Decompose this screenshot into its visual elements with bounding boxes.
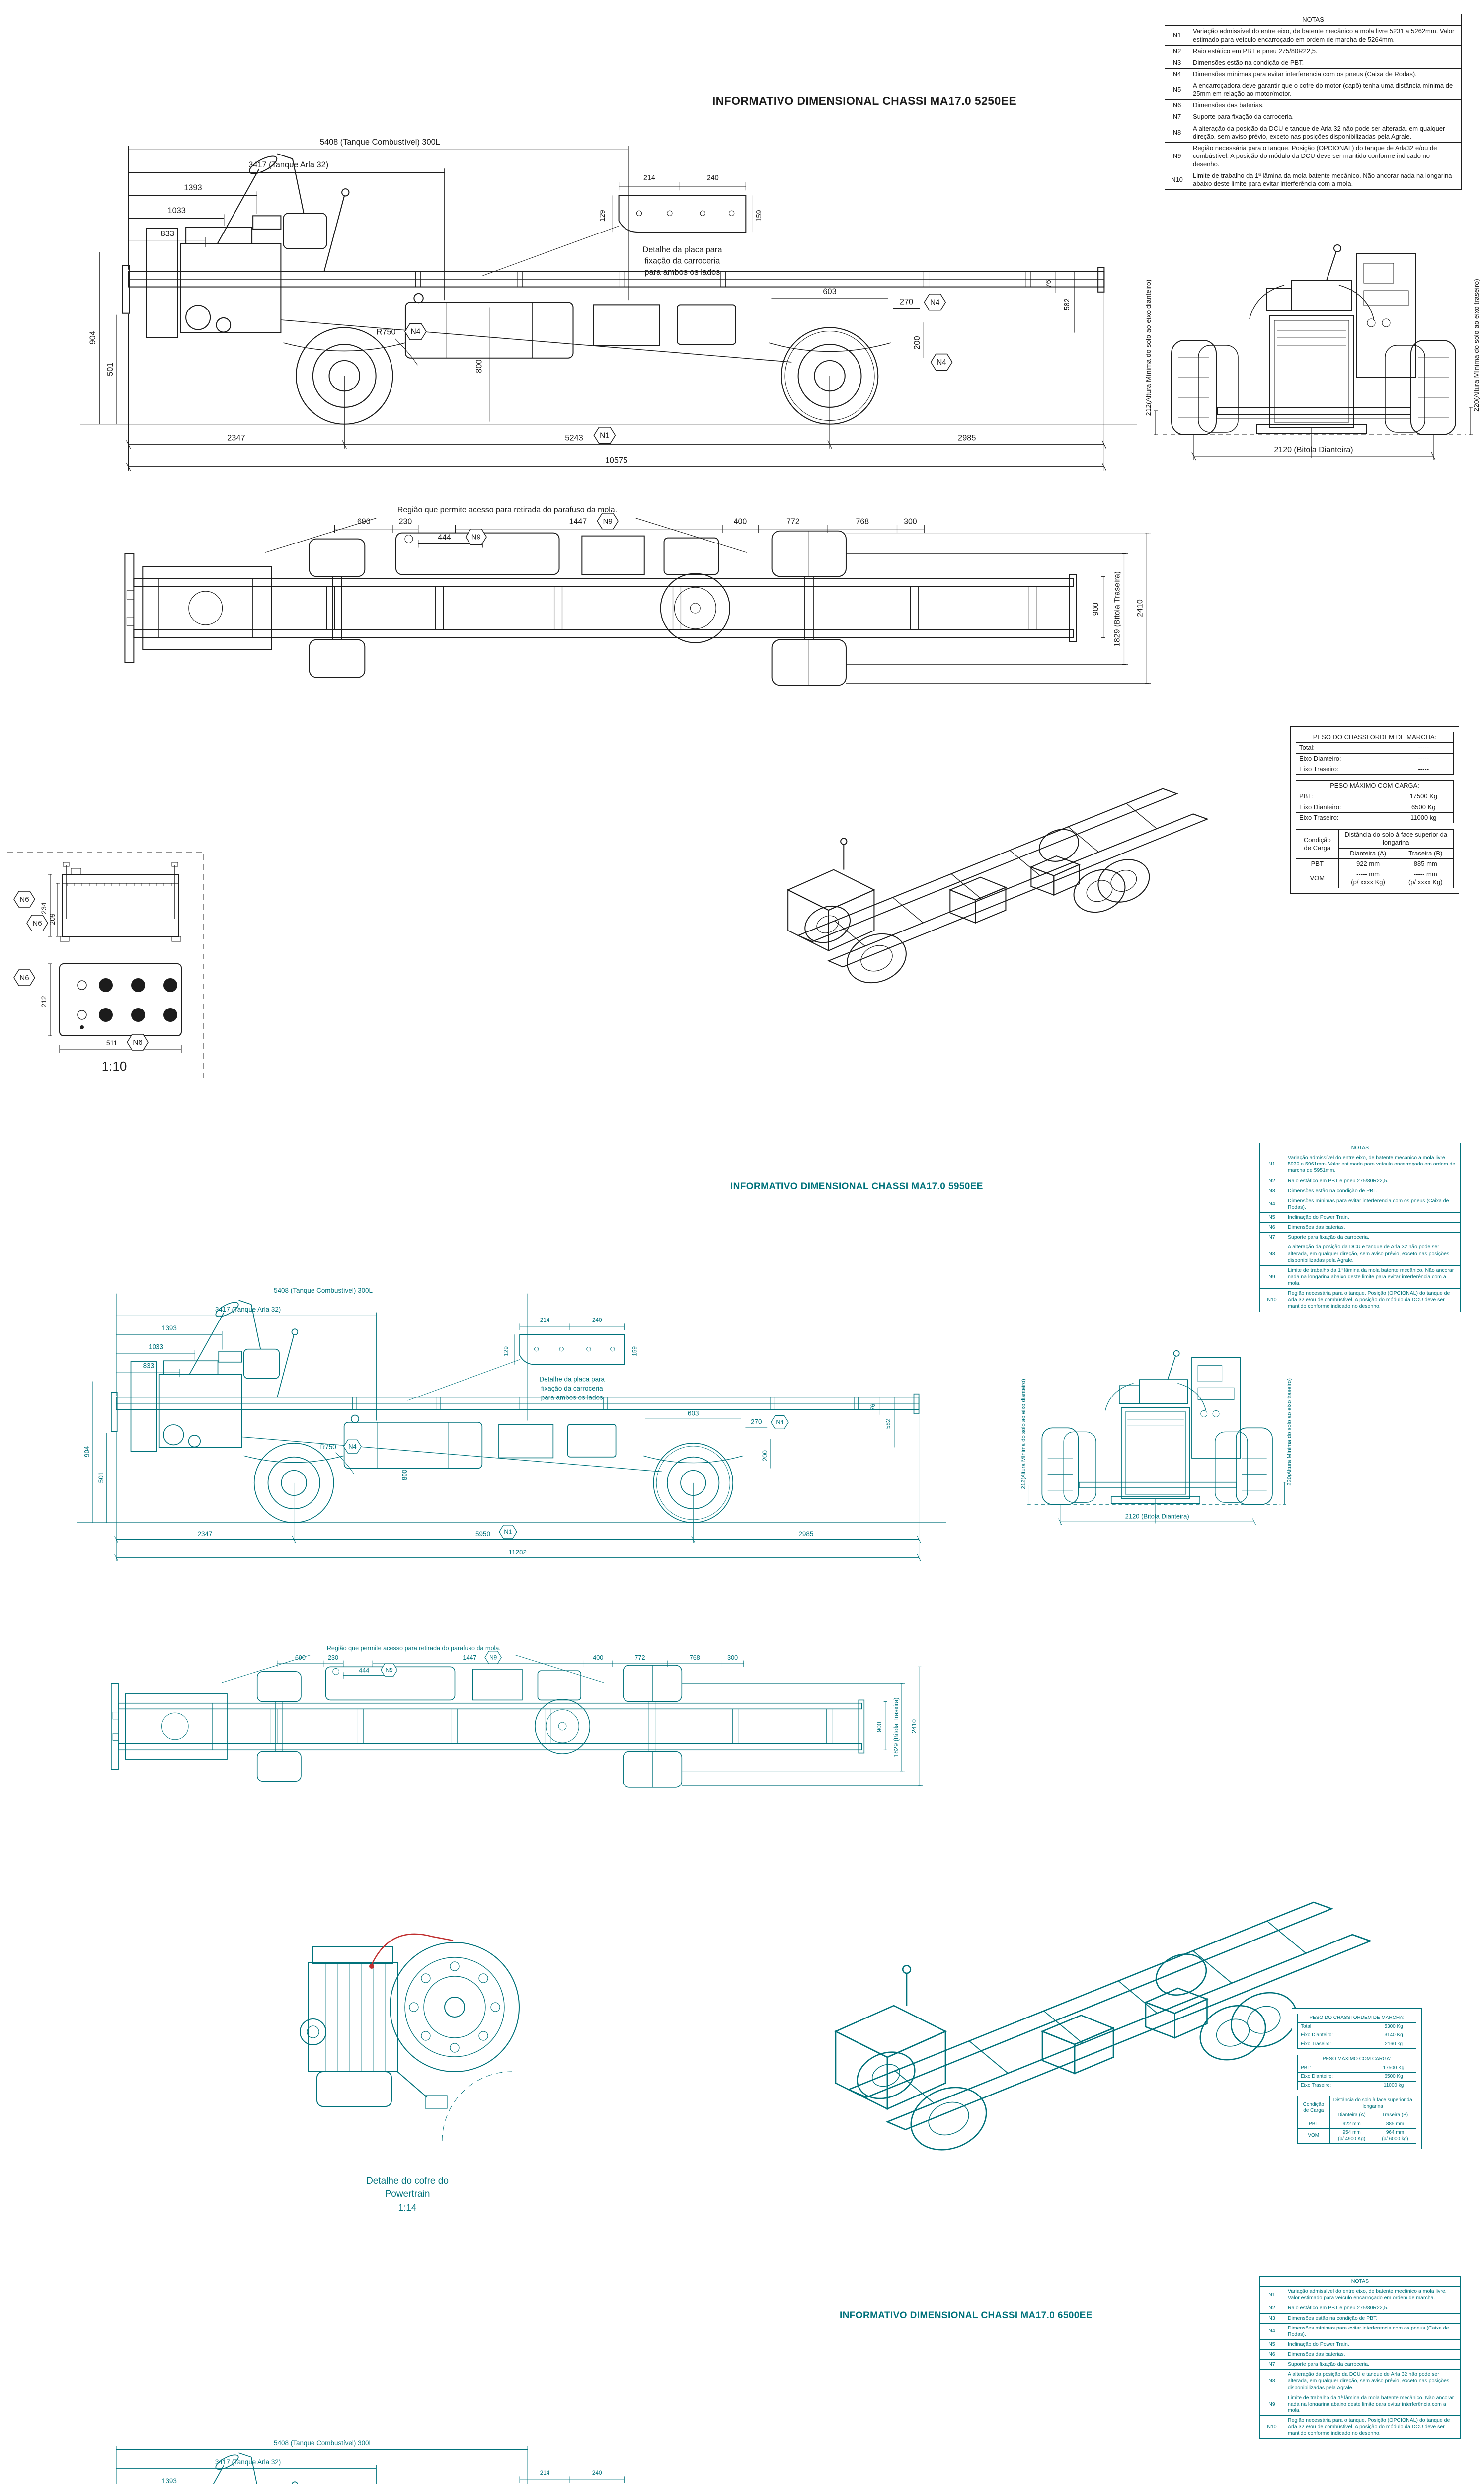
row-value: ----- mm (p/ xxxx Kg) <box>1338 869 1398 888</box>
table-row: Eixo Traseiro: ----- <box>1296 764 1454 774</box>
dim-label: 800 <box>474 359 483 373</box>
note-id: N8 <box>1165 123 1189 143</box>
svg-text:N6: N6 <box>133 1038 142 1047</box>
note-text: Dimensões das baterias. <box>1189 100 1462 111</box>
note-row: N10 Região necessária para o tanque. Pos… <box>1260 1289 1461 1312</box>
dim-label: 833 <box>143 1362 154 1370</box>
table-header: PESO MÁXIMO COM CARGA: <box>1296 781 1454 791</box>
note-tag: N9 <box>597 513 618 529</box>
dim-wheelbase: 5243 <box>565 433 583 442</box>
dim-label: 159 <box>755 210 763 222</box>
dim-label: 768 <box>856 518 869 526</box>
dim-label: 1393 <box>184 183 202 192</box>
svg-text:N4: N4 <box>937 358 946 367</box>
dim-label: 900 <box>876 1722 883 1732</box>
dim-label: 240 <box>592 2470 602 2476</box>
table-row: PBT: 17500 Kg <box>1296 791 1454 802</box>
weight-table-condition: Condição de Carga Distância do solo à fa… <box>1296 829 1454 888</box>
dim-front-overhang: 2347 <box>227 433 245 442</box>
dim-total-length: 10575 <box>605 456 628 465</box>
dim-rear-track: 1829 (Bitola Traseira) <box>1113 571 1122 647</box>
dim-label: 1393 <box>162 2477 177 2484</box>
svg-text:N4: N4 <box>348 1443 356 1450</box>
note-text: Região necessária para o tanque. Posição… <box>1284 2416 1461 2439</box>
row-value: 3140 Kg <box>1371 2031 1416 2040</box>
note-row: N5 Inclinação do Power Train. <box>1260 1213 1461 1223</box>
row-value: ----- <box>1394 764 1453 774</box>
dim-rear-overhang: 2985 <box>958 433 976 442</box>
note-row: N7 Suporte para fixação da carroceria. <box>1260 1233 1461 1242</box>
powertrain-detail: Detalhe do cofre do Powertrain 1:14 <box>278 1908 537 2221</box>
dim-label: 690 <box>295 1654 306 1661</box>
weight-tables: PESO DO CHASSI ORDEM DE MARCHA: Total: 5… <box>1292 2008 1422 2149</box>
note-tag: N6 <box>27 915 48 931</box>
note-row: N8 A alteração da posição da DCU e tanqu… <box>1165 123 1462 143</box>
note-tag: N4 <box>931 354 952 371</box>
note-row: N6 Dimensões das baterias. <box>1260 2350 1461 2360</box>
note-id: N10 <box>1165 170 1189 190</box>
note-id: N9 <box>1165 143 1189 170</box>
note-tag: N4 <box>405 323 426 340</box>
note-text: Região necessária para o tanque. Posição… <box>1284 1289 1461 1312</box>
note-id: N7 <box>1165 111 1189 123</box>
weight-tables: PESO DO CHASSI ORDEM DE MARCHA: Total: -… <box>1290 726 1459 894</box>
dim-total-length: 11282 <box>509 1549 527 1556</box>
row-label: Eixo Traseiro: <box>1298 2040 1371 2049</box>
row-value: 964 mm (p/ 6000 kg) <box>1374 2129 1416 2144</box>
row-label: PBT: <box>1296 791 1394 802</box>
cond-span-header: Distância do solo à face superior da lon… <box>1338 830 1453 849</box>
page-title: INFORMATIVO DIMENSIONAL CHASSI MA17.0 52… <box>710 94 1018 108</box>
table-row: Eixo Dianteiro: 6500 Kg <box>1298 2073 1416 2082</box>
dim-label: 904 <box>88 331 97 344</box>
row-value: 17500 Kg <box>1394 791 1453 802</box>
note-text: Raio estático em PBT e pneu 275/80R22,5. <box>1189 45 1462 57</box>
note-id: N6 <box>1165 100 1189 111</box>
cond-col-b: Traseira (B) <box>1374 2111 1416 2120</box>
dim-label: 129 <box>599 210 607 222</box>
side-view: 5408 (Tanque Combustível) 300L 3417 (Tan… <box>60 119 1153 475</box>
dim-label: 300 <box>727 1654 738 1661</box>
dim-label: 212 <box>40 996 48 1008</box>
svg-text:N9: N9 <box>386 1667 393 1674</box>
battery-detail: N6 234 N6 209 N6 212 511 N6 1:10 <box>7 845 216 1078</box>
row-label: Eixo Dianteiro: <box>1298 2073 1371 2082</box>
note-row: N2 Raio estático em PBT e pneu 275/80R22… <box>1165 45 1462 57</box>
note-id: N5 <box>1260 2339 1284 2349</box>
plate-caption: Detalhe da placa para <box>642 245 722 254</box>
dim-label: 501 <box>106 363 115 376</box>
row-value: 922 mm <box>1338 858 1398 869</box>
note-text: Suporte para fixação da carroceria. <box>1284 2360 1461 2370</box>
svg-text:N4: N4 <box>411 328 421 336</box>
dim-label: 200 <box>761 1450 769 1461</box>
row-label: PBT <box>1298 2120 1330 2129</box>
dim-label: 1393 <box>162 1324 177 1332</box>
note-id: N2 <box>1260 2303 1284 2313</box>
notes-table: NOTAS N1 Variação admissível do entre ei… <box>1165 14 1462 190</box>
dim-label: 270 <box>900 297 913 306</box>
note-id: N2 <box>1165 45 1189 57</box>
dim-label: 772 <box>635 1654 645 1661</box>
detail-caption: Powertrain <box>385 2189 430 2199</box>
weight-table-chassis: PESO DO CHASSI ORDEM DE MARCHA: Total: 5… <box>1297 2014 1416 2049</box>
front-view: 212(Altura Mínima do solo ao eixo diante… <box>1143 233 1484 467</box>
detail-caption: Detalhe do cofre do <box>366 2176 449 2186</box>
note-text: Região necessária para o tanque. Posição… <box>1189 143 1462 170</box>
page-title: INFORMATIVO DIMENSIONAL CHASSI MA17.0 59… <box>730 1181 969 1195</box>
note-row: N4 Dimensões mínimas para evitar interfe… <box>1260 2323 1461 2339</box>
note-tag: N9 <box>381 1664 397 1676</box>
note-id: N9 <box>1260 1265 1284 1288</box>
cond-col-a: Dianteira (A) <box>1338 848 1398 858</box>
row-value: 6500 Kg <box>1371 2073 1416 2082</box>
row-label: Eixo Dianteiro: <box>1296 802 1394 812</box>
row-label: Eixo Traseiro: <box>1296 812 1394 823</box>
notes-header: NOTAS <box>1260 2277 1461 2287</box>
note-row: N9 Região necessária para o tanque. Posi… <box>1165 143 1462 170</box>
note-id: N3 <box>1260 2313 1284 2323</box>
row-value: 2160 kg <box>1371 2040 1416 2049</box>
note-row: N3 Dimensões estão na condição de PBT. <box>1260 2313 1461 2323</box>
note-id: N6 <box>1260 1223 1284 1233</box>
note-text: A encarroçadora deve garantir que o cofr… <box>1189 80 1462 100</box>
dim-label: 1033 <box>167 206 185 215</box>
note-text: Suporte para fixação da carroceria. <box>1284 1233 1461 1242</box>
note-text: Dimensões mínimas para evitar interferen… <box>1284 2323 1461 2339</box>
table-row: PBT 922 mm 885 mm <box>1298 2120 1416 2129</box>
dim-label: 1447 <box>569 518 587 526</box>
dim-label: 582 <box>885 1419 892 1429</box>
note-row: N4 Dimensões mínimas para evitar interfe… <box>1165 69 1462 80</box>
note-text: Variação admissível do entre eixo, de ba… <box>1284 1153 1461 1176</box>
note-text: Variação admissível do entre eixo, de ba… <box>1284 2287 1461 2303</box>
note-id: N1 <box>1260 2287 1284 2303</box>
dim-label: 240 <box>592 1317 602 1323</box>
svg-text:N6: N6 <box>19 895 29 904</box>
table-header: PESO DO CHASSI ORDEM DE MARCHA: <box>1298 2014 1416 2023</box>
dim-label: 582 <box>1063 298 1071 310</box>
top-caption: Região que permite acesso para retirada … <box>327 1645 501 1652</box>
note-row: N9 Limite de trabalho da 1ª lâmina da mo… <box>1260 1265 1461 1288</box>
table-row: Eixo Traseiro: 11000 kg <box>1296 812 1454 823</box>
note-row: N1 Variação admissível do entre eixo, de… <box>1260 1153 1461 1176</box>
dim-label: 900 <box>1092 603 1100 616</box>
page-title: INFORMATIVO DIMENSIONAL CHASSI MA17.0 65… <box>840 2310 1068 2324</box>
dim-tank-fuel: 5408 (Tanque Combustível) 300L <box>274 2439 373 2447</box>
table-header: PESO DO CHASSI ORDEM DE MARCHA: <box>1296 732 1454 743</box>
weight-table-chassis: PESO DO CHASSI ORDEM DE MARCHA: Total: -… <box>1296 732 1454 775</box>
dim-label: 129 <box>503 1346 509 1356</box>
row-label: PBT: <box>1298 2064 1371 2073</box>
dim-rear-overhang: 2985 <box>798 1530 813 1538</box>
dim-front-overhang: 2347 <box>197 1530 212 1538</box>
note-text: Limite de trabalho da 1ª lâmina da mola … <box>1284 1265 1461 1288</box>
plate-caption: para ambos os lados <box>541 1394 603 1401</box>
note-tag: N4 <box>344 1440 361 1453</box>
note-tag: N1 <box>594 427 615 444</box>
table-row: Eixo Traseiro: 11000 kg <box>1298 2081 1416 2090</box>
note-id: N8 <box>1260 2370 1284 2393</box>
row-value: ----- mm (p/ xxxx Kg) <box>1398 869 1453 888</box>
dim-label: 76 <box>870 1404 876 1411</box>
row-value: 5300 Kg <box>1371 2022 1416 2031</box>
plate-caption: para ambos os lados <box>644 268 720 277</box>
note-text: Dimensões mínimas para evitar interferen… <box>1189 69 1462 80</box>
dim-label: 690 <box>357 518 371 526</box>
row-value: 6500 Kg <box>1394 802 1453 812</box>
note-row: N8 A alteração da posição da DCU e tanqu… <box>1260 2370 1461 2393</box>
row-label: VOM <box>1298 2129 1330 2144</box>
note-id: N10 <box>1260 1289 1284 1312</box>
notes-table: NOTAS N1 Variação admissível do entre ei… <box>1259 1143 1461 1312</box>
note-text: A alteração da posição da DCU e tanque d… <box>1189 123 1462 143</box>
note-tag: N9 <box>466 529 486 545</box>
dim-tank-arla: 3417 (Tanque Arla 32) <box>215 1306 281 1313</box>
dim-label: 400 <box>734 518 747 526</box>
note-id: N4 <box>1260 2323 1284 2339</box>
plate-caption: Detalhe da placa para <box>539 1375 605 1383</box>
note-row: N2 Raio estático em PBT e pneu 275/80R22… <box>1260 2303 1461 2313</box>
dim-label: 230 <box>328 1654 338 1661</box>
dim-label: 76 <box>1045 280 1053 288</box>
row-value: ----- <box>1394 753 1453 764</box>
dim-rear-track: 1829 (Bitola Traseira) <box>893 1697 900 1757</box>
note-text: Limite de trabalho da 1ª lâmina da mola … <box>1284 2393 1461 2415</box>
svg-text:N9: N9 <box>471 533 481 542</box>
weight-table-max: PESO MÁXIMO COM CARGA: PBT: 17500 Kg Eix… <box>1297 2055 1416 2090</box>
note-id: N5 <box>1260 1213 1284 1223</box>
top-view: Região que permite acesso para retirada … <box>60 479 1177 737</box>
row-label: Eixo Traseiro: <box>1296 764 1394 774</box>
note-id: N9 <box>1260 2393 1284 2415</box>
note-id: N3 <box>1260 1186 1284 1196</box>
row-label: Eixo Dianteiro: <box>1298 2031 1371 2040</box>
row-label: Total: <box>1298 2022 1371 2031</box>
table-row: Eixo Dianteiro: 6500 Kg <box>1296 802 1454 812</box>
svg-text:N9: N9 <box>489 1654 497 1661</box>
dim-label: 772 <box>786 518 800 526</box>
note-text: Dimensões mínimas para evitar interferen… <box>1284 1196 1461 1212</box>
note-text: Dimensões das baterias. <box>1284 1223 1461 1233</box>
front-view: 212(Altura Mínima do solo ao eixo diante… <box>1018 1341 1297 1531</box>
note-text: Dimensões estão na condição de PBT. <box>1284 1186 1461 1196</box>
note-row: N7 Suporte para fixação da carroceria. <box>1260 2360 1461 2370</box>
side-view: 5408 (Tanque Combustível) 300L 3417 (Tan… <box>60 1272 959 1564</box>
svg-text:N1: N1 <box>504 1529 512 1536</box>
dim-label: 234 <box>40 902 48 914</box>
note-id: N2 <box>1260 1176 1284 1186</box>
table-header: PESO MÁXIMO COM CARGA: <box>1298 2055 1416 2064</box>
note-tag: N4 <box>771 1415 788 1429</box>
dim-label: 444 <box>359 1667 369 1674</box>
dim-overall-width: 2410 <box>911 1719 918 1733</box>
note-row: N5 A encarroçadora deve garantir que o c… <box>1165 80 1462 100</box>
dim-tank-arla: 3417 (Tanque Arla 32) <box>248 160 328 169</box>
note-row: N5 Inclinação do Power Train. <box>1260 2339 1461 2349</box>
dim-tank-fuel: 5408 (Tanque Combustível) 300L <box>320 138 440 147</box>
cond-col-a: Dianteira (A) <box>1329 2111 1374 2120</box>
table-row: Total: ----- <box>1296 743 1454 753</box>
note-id: N10 <box>1260 2416 1284 2439</box>
note-id: N4 <box>1260 1196 1284 1212</box>
dim-label: 1447 <box>463 1654 476 1661</box>
dim-label: 444 <box>438 534 451 542</box>
note-id: N1 <box>1165 26 1189 46</box>
top-view: Região que permite acesso para retirada … <box>60 1625 944 1828</box>
dim-overall-width: 2410 <box>1136 599 1144 617</box>
dim-label: 214 <box>643 174 655 182</box>
note-row: N8 A alteração da posição da DCU e tanqu… <box>1260 1242 1461 1265</box>
dim-rear-axle-height: 220(Altura Mínima do solo ao eixo trasei… <box>1286 1378 1292 1486</box>
note-id: N1 <box>1260 1153 1284 1176</box>
weight-table-condition: Condição de Carga Distância do solo à fa… <box>1297 2096 1416 2144</box>
note-tag: N6 <box>14 970 35 986</box>
note-row: N3 Dimensões estão na condição de PBT. <box>1260 1186 1461 1196</box>
table-row: PBT 922 mm 885 mm <box>1296 858 1454 869</box>
note-row: N4 Dimensões mínimas para evitar interfe… <box>1260 1196 1461 1212</box>
note-text: Limite de trabalho da 1ª lâmina da mola … <box>1189 170 1462 190</box>
dim-label: R750 <box>320 1443 336 1451</box>
dim-front-track: 2120 (Bitola Dianteira) <box>1274 446 1353 454</box>
note-row: N9 Limite de trabalho da 1ª lâmina da mo… <box>1260 2393 1461 2415</box>
note-text: Raio estático em PBT e pneu 275/80R22,5. <box>1284 1176 1461 1186</box>
dim-label: 833 <box>161 229 174 238</box>
notes-header: NOTAS <box>1260 1143 1461 1153</box>
row-value: 885 mm <box>1398 858 1453 869</box>
dim-label: 209 <box>48 913 56 925</box>
row-value: 922 mm <box>1329 2120 1374 2129</box>
cond-col-b: Traseira (B) <box>1398 848 1453 858</box>
note-text: Variação admissível do entre eixo, de ba… <box>1189 26 1462 46</box>
dim-label: 511 <box>106 1039 118 1047</box>
dim-label: 501 <box>97 1472 105 1483</box>
dim-front-axle-height: 212(Altura Mínima do solo ao eixo diante… <box>1020 1379 1026 1489</box>
table-row: Total: 5300 Kg <box>1298 2022 1416 2031</box>
dim-label: 400 <box>593 1654 603 1661</box>
note-text: A alteração da posição da DCU e tanque d… <box>1284 2370 1461 2393</box>
note-text: Inclinação do Power Train. <box>1284 1213 1461 1223</box>
dim-front-track: 2120 (Bitola Dianteira) <box>1125 1513 1189 1520</box>
dim-label: 904 <box>83 1446 90 1457</box>
row-label: Eixo Dianteiro: <box>1296 753 1394 764</box>
dim-label: 603 <box>688 1409 699 1417</box>
dim-front-axle-height: 212(Altura Mínima do solo ao eixo diante… <box>1144 280 1152 416</box>
svg-text:N4: N4 <box>776 1419 783 1426</box>
note-row: N6 Dimensões das baterias. <box>1165 100 1462 111</box>
table-row: Eixo Traseiro: 2160 kg <box>1298 2040 1416 2049</box>
dim-rear-axle-height: 220(Altura Mínima do solo ao eixo trasei… <box>1472 279 1480 412</box>
dim-label: 1033 <box>149 1343 163 1351</box>
note-id: N5 <box>1165 80 1189 100</box>
dim-label: 603 <box>823 287 836 296</box>
dim-label: 300 <box>904 518 917 526</box>
note-tag: N1 <box>499 1525 517 1539</box>
note-text: A alteração da posição da DCU e tanque d… <box>1284 1242 1461 1265</box>
svg-text:N1: N1 <box>600 431 610 440</box>
dim-tank-arla: 3417 (Tanque Arla 32) <box>215 2458 281 2466</box>
svg-text:N6: N6 <box>19 974 29 982</box>
note-row: N1 Variação admissível do entre eixo, de… <box>1260 2287 1461 2303</box>
detail-scale: 1:14 <box>398 2203 417 2213</box>
note-id: N3 <box>1165 57 1189 69</box>
dim-label: 214 <box>540 1317 550 1323</box>
dim-label: 240 <box>707 174 719 182</box>
note-row: N6 Dimensões das baterias. <box>1260 1223 1461 1233</box>
row-value: 11000 kg <box>1371 2081 1416 2090</box>
row-label: Total: <box>1296 743 1394 753</box>
dim-label: R750 <box>377 328 396 337</box>
row-label: Eixo Traseiro: <box>1298 2081 1371 2090</box>
cond-col-header: Condição de Carga <box>1296 830 1339 859</box>
row-label: PBT <box>1296 858 1339 869</box>
row-value: 17500 Kg <box>1371 2064 1416 2073</box>
note-text: Raio estático em PBT e pneu 275/80R22,5. <box>1284 2303 1461 2313</box>
note-tag: N6 <box>14 891 35 907</box>
note-tag: N4 <box>924 294 945 310</box>
note-row: N10 Região necessária para o tanque. Pos… <box>1260 2416 1461 2439</box>
note-id: N4 <box>1165 69 1189 80</box>
note-tag: N9 <box>485 1651 501 1664</box>
dim-label: 768 <box>690 1654 700 1661</box>
row-value: 885 mm <box>1374 2120 1416 2129</box>
cond-span-header: Distância do solo à face superior da lon… <box>1329 2096 1416 2111</box>
dim-label: 200 <box>913 336 922 349</box>
note-row: N2 Raio estático em PBT e pneu 275/80R22… <box>1260 1176 1461 1186</box>
svg-text:N4: N4 <box>930 298 940 307</box>
dim-label: 214 <box>540 2470 550 2476</box>
dim-label: 800 <box>401 1470 408 1480</box>
note-text: Suporte para fixação da carroceria. <box>1189 111 1462 123</box>
note-text: Dimensões estão na condição de PBT. <box>1189 57 1462 69</box>
table-row: VOM ----- mm (p/ xxxx Kg) ----- mm (p/ x… <box>1296 869 1454 888</box>
note-tag: N6 <box>127 1034 148 1050</box>
plate-caption: fixação da carroceria <box>644 256 720 265</box>
notes-header: NOTAS <box>1165 14 1462 26</box>
scale-label: 1:10 <box>102 1059 127 1074</box>
dim-label: 159 <box>632 1346 638 1356</box>
side-view: 5408 (Tanque Combustível) 300L 3417 (Tan… <box>60 2424 959 2484</box>
note-text: Inclinação do Power Train. <box>1284 2339 1461 2349</box>
table-row: VOM 954 mm (p/ 4900 Kg) 964 mm (p/ 6000 … <box>1298 2129 1416 2144</box>
weight-table-max: PESO MÁXIMO COM CARGA: PBT: 17500 Kg Eix… <box>1296 780 1454 823</box>
row-value: 11000 kg <box>1394 812 1453 823</box>
note-id: N7 <box>1260 2360 1284 2370</box>
notes-table: NOTAS N1 Variação admissível do entre ei… <box>1259 2276 1461 2439</box>
row-label: VOM <box>1296 869 1339 888</box>
table-row: PBT: 17500 Kg <box>1298 2064 1416 2073</box>
row-value: ----- <box>1394 743 1453 753</box>
dim-wheelbase: 5950 <box>475 1530 490 1538</box>
table-row: Eixo Dianteiro: 3140 Kg <box>1298 2031 1416 2040</box>
isometric-view <box>768 723 1274 986</box>
dim-label: 270 <box>751 1418 762 1425</box>
note-row: N10 Limite de trabalho da 1ª lâmina da m… <box>1165 170 1462 190</box>
note-text: Dimensões estão na condição de PBT. <box>1284 2313 1461 2323</box>
note-text: Dimensões das baterias. <box>1284 2350 1461 2360</box>
note-row: N7 Suporte para fixação da carroceria. <box>1165 111 1462 123</box>
svg-text:N9: N9 <box>603 517 613 526</box>
note-id: N7 <box>1260 1233 1284 1242</box>
note-row: N1 Variação admissível do entre eixo, de… <box>1165 26 1462 46</box>
table-row: Eixo Dianteiro: ----- <box>1296 753 1454 764</box>
sheet: { "colors": { "ink": "#1c1c1c", "teal": … <box>0 0 1484 2484</box>
note-id: N8 <box>1260 1242 1284 1265</box>
svg-text:N6: N6 <box>32 919 42 928</box>
dim-label: 230 <box>399 518 412 526</box>
cond-col-header: Condição de Carga <box>1298 2096 1330 2120</box>
note-row: N3 Dimensões estão na condição de PBT. <box>1165 57 1462 69</box>
